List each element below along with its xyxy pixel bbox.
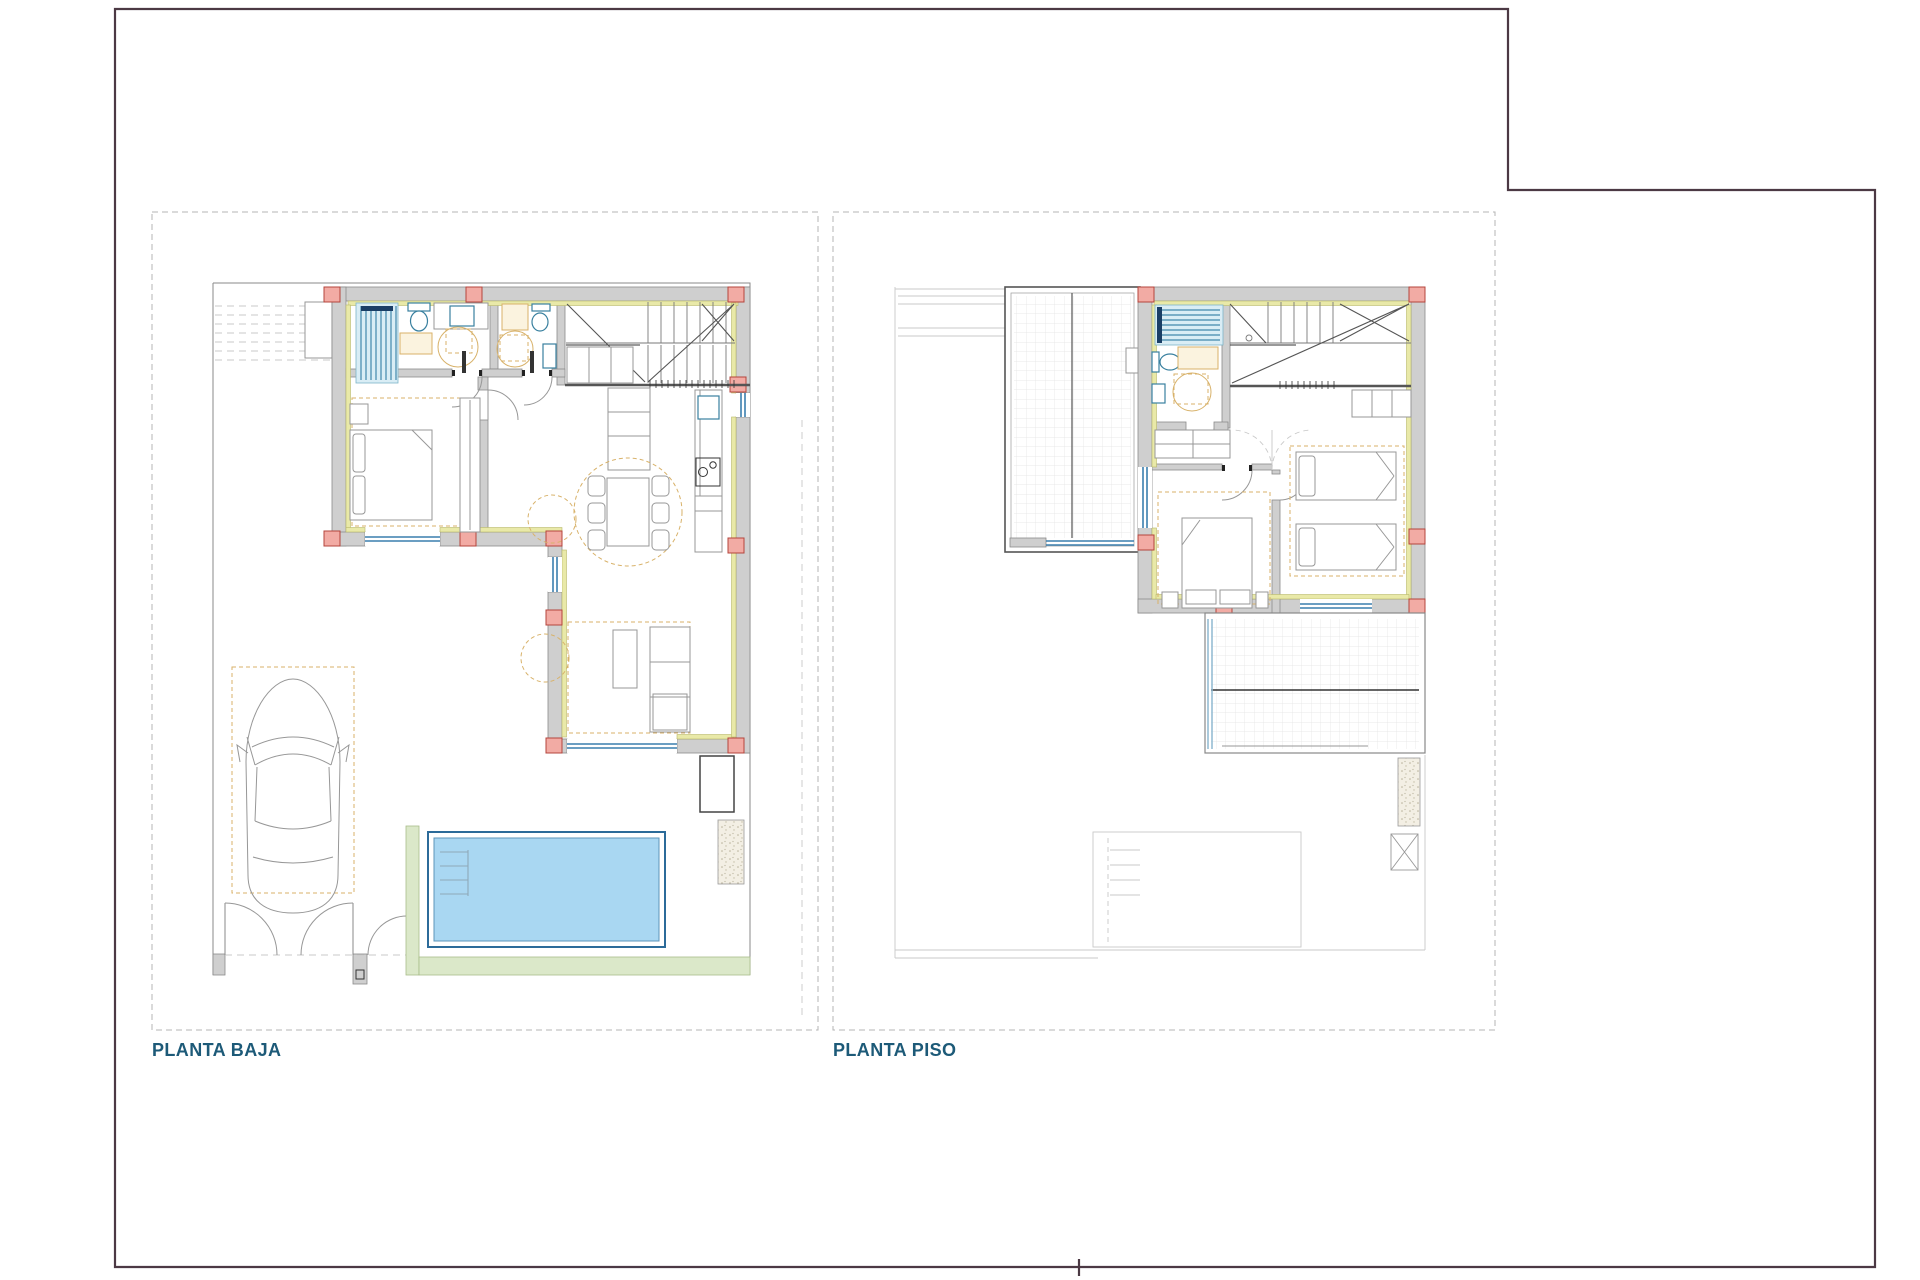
outdoor-closet	[305, 302, 332, 358]
plan-planta-piso	[895, 287, 1425, 958]
pool-ghost	[1093, 832, 1301, 947]
vanity-counter	[1178, 347, 1218, 369]
sink	[450, 306, 474, 326]
drawing-sheet: PLANTA BAJA	[0, 0, 1920, 1280]
pool-area	[406, 826, 750, 975]
pedestrian-gate	[368, 916, 407, 955]
nightstand	[1256, 592, 1268, 608]
plan-planta-baja	[213, 283, 802, 1015]
second-bedroom	[1290, 446, 1404, 576]
toilet	[1160, 354, 1180, 370]
tv-stand	[613, 630, 637, 688]
master-bedroom	[1158, 492, 1270, 608]
sheet-border	[115, 9, 1875, 1267]
kitchen-sink	[698, 396, 719, 419]
green-edge	[419, 957, 750, 975]
toilet-tank	[532, 304, 550, 311]
living-room	[568, 622, 690, 733]
sink	[1152, 384, 1165, 403]
understair-shelf	[567, 347, 633, 383]
entry-gates	[225, 903, 407, 955]
parking-space	[232, 667, 354, 913]
bathroom-2	[497, 304, 556, 373]
sofa	[650, 627, 690, 732]
nightstand	[350, 404, 368, 424]
turning-circle	[1173, 373, 1211, 411]
gravel-strip	[718, 820, 744, 884]
green-edge	[406, 826, 419, 975]
cabinet	[400, 333, 432, 354]
balcony	[1205, 613, 1425, 753]
panel-planta-baja: PLANTA BAJA	[152, 212, 818, 1060]
stair-closet	[1352, 390, 1411, 417]
staircase-baja	[565, 302, 750, 388]
drain-box	[1391, 834, 1418, 870]
panel-planta-piso: PLANTA PISO	[833, 212, 1495, 1060]
gravel-strip	[1398, 758, 1420, 826]
toilet-tank	[408, 303, 430, 311]
cabinet	[502, 304, 528, 330]
bedroom1-door	[1222, 470, 1252, 500]
nightstand	[1162, 592, 1178, 608]
sink	[543, 344, 556, 368]
toilet-tank	[1152, 352, 1159, 372]
staircase-piso	[1230, 302, 1411, 417]
roof-terrace	[1005, 287, 1140, 552]
bedroom-baja	[350, 398, 480, 532]
shower	[356, 303, 398, 383]
car	[237, 679, 349, 913]
toilet	[532, 313, 548, 331]
plan-label-piso: PLANTA PISO	[833, 1040, 956, 1060]
plan-label-baja: PLANTA BAJA	[152, 1040, 281, 1060]
toilet	[411, 311, 428, 331]
dining-table	[607, 478, 649, 546]
wall-vent	[1126, 348, 1138, 373]
fridge	[695, 496, 722, 552]
entry-step	[700, 756, 734, 812]
